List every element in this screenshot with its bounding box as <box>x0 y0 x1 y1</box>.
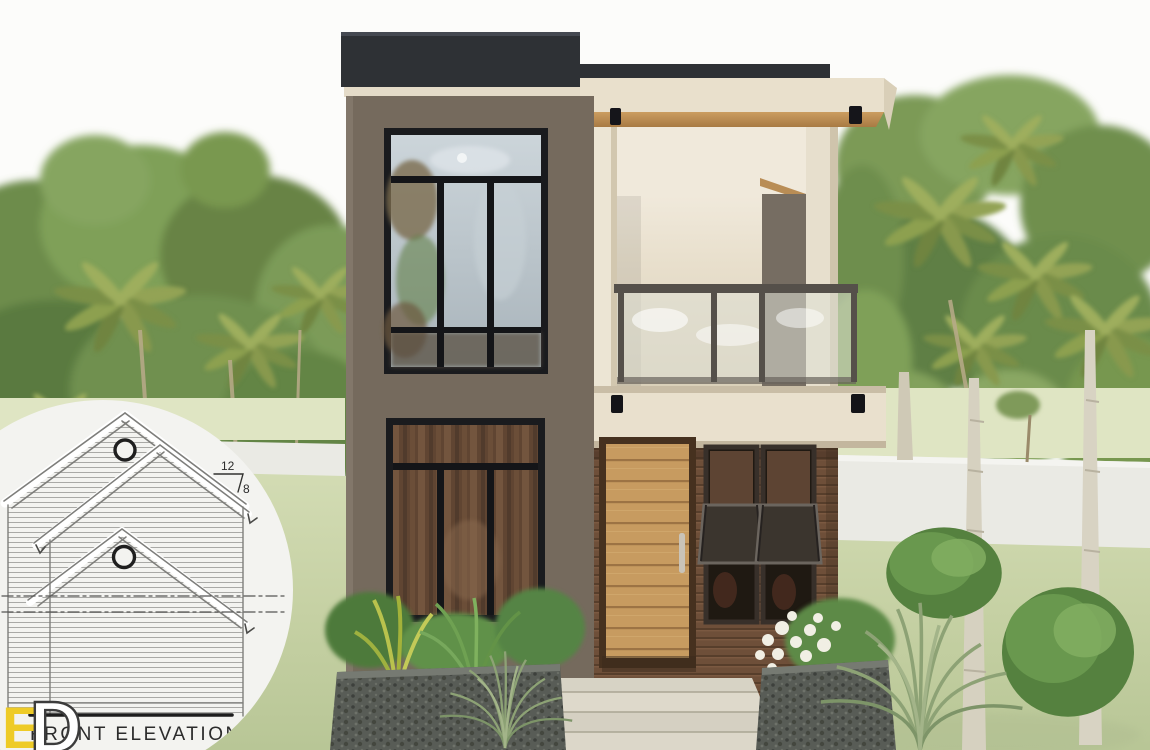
step <box>552 678 758 692</box>
step <box>534 712 776 732</box>
door-handle <box>679 533 685 573</box>
railing-post <box>711 292 717 382</box>
gable-vent <box>115 440 135 460</box>
door-threshold-shadow <box>602 656 696 672</box>
mullion <box>437 470 444 615</box>
small-tree <box>996 391 1040 419</box>
step <box>544 692 766 712</box>
mullion <box>487 183 494 367</box>
round-bush <box>886 527 1002 618</box>
wall-spotlight-icon <box>851 394 865 413</box>
transom-bar <box>391 176 541 183</box>
pitch-rise-label: 12 <box>221 459 235 473</box>
interior-glow <box>772 574 796 610</box>
planter-bush <box>495 588 585 668</box>
open-awning-sash <box>756 505 821 563</box>
downlight-icon <box>849 106 862 124</box>
mullion <box>437 183 444 367</box>
railing-top-rail <box>614 284 858 293</box>
light-reflection <box>457 153 467 163</box>
window-top-panel <box>767 451 810 505</box>
logo-letter-d: D <box>30 688 82 750</box>
lower-window <box>386 418 545 622</box>
railing-post <box>618 292 624 382</box>
entry-door <box>599 437 696 668</box>
pitch-run-label: 8 <box>243 482 250 496</box>
railing-bottom-rail <box>617 377 856 384</box>
downlight-icon <box>610 108 621 125</box>
awning-window-2 <box>756 447 821 622</box>
roof-soffit-wood <box>580 112 884 127</box>
slab-shadow-top <box>590 386 886 393</box>
awning-window-1 <box>699 447 764 622</box>
roof-fascia <box>573 78 884 112</box>
upper-window <box>383 128 548 374</box>
roof-coping-dark <box>578 64 830 78</box>
door-leaf <box>606 444 689 658</box>
architectural-render: 12 8 FRONT ELEVATION E D <box>0 0 1150 750</box>
horizontal-bar <box>391 327 541 333</box>
perimeter-wall-right <box>838 455 1150 550</box>
mullion <box>487 470 494 615</box>
render-canvas: 12 8 FRONT ELEVATION E D <box>0 0 1150 750</box>
interior-glow <box>713 572 737 608</box>
tower-parapet <box>341 32 580 87</box>
railing-post <box>759 292 765 382</box>
parapet-highlight <box>341 32 580 36</box>
window-top-panel <box>710 451 753 505</box>
balcony-railing <box>614 284 858 384</box>
railing-post <box>851 292 857 382</box>
watermark-logo: E D <box>2 688 82 750</box>
wall-spotlight-icon <box>611 395 623 413</box>
transom-bar <box>393 463 538 470</box>
tower-fascia-strip <box>344 86 580 97</box>
gable-vent <box>114 547 135 568</box>
open-awning-sash <box>699 505 764 563</box>
round-bush <box>1002 587 1134 717</box>
